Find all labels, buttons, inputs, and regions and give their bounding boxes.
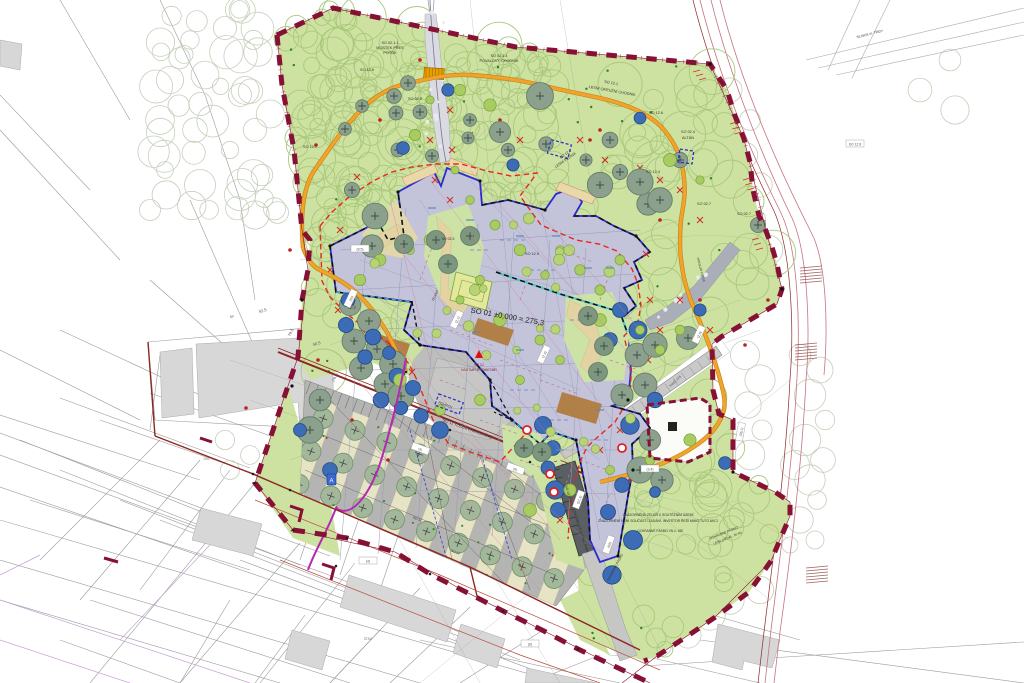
svg-text:SO 12.8: SO 12.8 — [849, 143, 862, 147]
svg-text:SO 02.7: SO 02.7 — [697, 202, 711, 206]
svg-text:POTOK: POTOK — [383, 51, 397, 55]
svg-text:(9,4): (9,4) — [647, 468, 654, 472]
svg-text:ZNÁZORNĚNÁ ZELEŇ V SOUTĚŽNÍM Ú: ZNÁZORNĚNÁ ZELEŇ V SOUTĚŽNÍM ÚZEMÍ — [623, 512, 694, 517]
svg-text:MOSTEK PŘES: MOSTEK PŘES — [376, 45, 404, 50]
svg-text:(8,5): (8,5) — [357, 248, 364, 252]
svg-text:SO 12.5: SO 12.5 — [525, 252, 539, 256]
svg-text:STAV.: STAV. — [364, 637, 373, 641]
svg-text:SO 02.1.4: SO 02.1.4 — [490, 54, 507, 58]
svg-text:SO 02.1.1: SO 02.1.1 — [381, 41, 398, 45]
svg-text:BP: BP — [230, 315, 235, 319]
svg-text:19A: 19A — [203, 457, 210, 461]
svg-text:SO 02.4: SO 02.4 — [681, 130, 695, 134]
svg-text:SO 12.7: SO 12.7 — [303, 145, 317, 149]
svg-text:OCHRANNÉ PÁSMO VN č. 185: OCHRANNÉ PÁSMO VN č. 185 — [637, 528, 683, 533]
svg-text:SO 12.6: SO 12.6 — [360, 68, 374, 72]
svg-text:ZNÁZORNĚNÍ NENÍ SOUČÁSTÍ ZADÁN: ZNÁZORNĚNÍ NENÍ SOUČÁSTÍ ZADÁNÍ. INVESTO… — [598, 518, 718, 523]
svg-text:(4): (4) — [366, 560, 370, 564]
svg-text:SO 02.5: SO 02.5 — [442, 237, 455, 241]
svg-text:SO 12.6: SO 12.6 — [649, 111, 663, 115]
svg-text:ALTÁN: ALTÁN — [682, 136, 694, 140]
svg-text:(6): (6) — [528, 643, 532, 647]
svg-text:POVALOVÝ CHODNÍK: POVALOVÝ CHODNÍK — [480, 59, 519, 63]
svg-text:A: A — [329, 479, 333, 485]
svg-text:SO 02.7: SO 02.7 — [737, 212, 751, 216]
svg-text:SO 02: SO 02 — [474, 363, 484, 367]
svg-text:SO 02.5: SO 02.5 — [408, 97, 422, 101]
svg-text:NÁSTUPNÍ PROSTOR: NÁSTUPNÍ PROSTOR — [461, 368, 497, 372]
svg-text:SO 12.4: SO 12.4 — [646, 170, 660, 174]
